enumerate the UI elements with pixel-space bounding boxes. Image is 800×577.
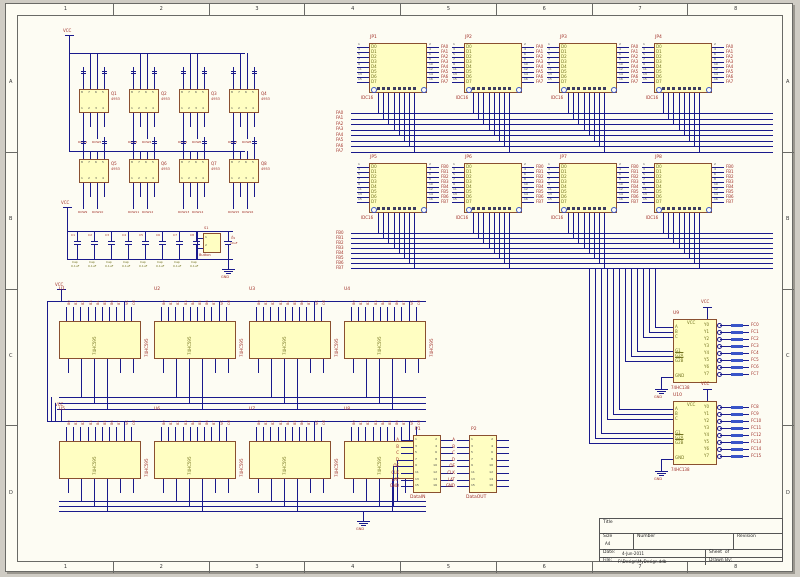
- net-label: FC4: [751, 351, 759, 355]
- wire: [694, 93, 695, 146]
- series-pad[interactable]: [731, 366, 743, 369]
- net-label: B7: [213, 420, 217, 425]
- wire: [285, 307, 286, 321]
- series-pad[interactable]: [731, 420, 743, 423]
- transistor-pair-Q1[interactable]: [79, 89, 109, 113]
- bus-net-label: FB4: [336, 251, 344, 255]
- header-pad: [382, 87, 385, 90]
- wire: [61, 414, 62, 421]
- header-part: IDC16: [456, 216, 468, 220]
- pin-number: 1: [471, 438, 473, 441]
- net-label: FB7: [726, 200, 734, 204]
- series-pad[interactable]: [731, 413, 743, 416]
- series-pad[interactable]: [731, 345, 743, 348]
- wire: [720, 332, 731, 333]
- transistor-pair-Q3[interactable]: [179, 89, 209, 113]
- wire: [162, 231, 163, 241]
- mount-hole: [421, 207, 427, 213]
- vcc-bar: [703, 307, 712, 308]
- connector-designator: P2: [471, 428, 477, 433]
- bus-net-label: FB2: [336, 241, 344, 245]
- series-pad[interactable]: [731, 338, 743, 341]
- wire: [83, 113, 84, 139]
- pin-name: Y5: [704, 358, 709, 362]
- ruler-tick: [687, 4, 688, 15]
- net-label: VC: [411, 300, 415, 305]
- wire: [323, 479, 324, 493]
- wire: [74, 241, 81, 242]
- header-pad: [603, 207, 606, 210]
- wire: [226, 427, 227, 441]
- wire: [661, 459, 662, 467]
- pin-number: 6: [245, 161, 247, 164]
- wire: [578, 213, 579, 243]
- wire: [258, 479, 259, 493]
- pin-number: 2: [524, 43, 526, 46]
- wire: [497, 460, 509, 461]
- header-pad: [583, 87, 586, 90]
- net-label: B4: [97, 300, 101, 305]
- pin-name: VCC: [687, 403, 695, 407]
- gnd-bar: [361, 525, 366, 526]
- wire: [457, 460, 469, 461]
- part-label: 74HC595: [335, 338, 339, 357]
- wire: [69, 40, 70, 53]
- pin-number: 1: [181, 107, 183, 110]
- wire: [589, 213, 590, 253]
- pin-number: 5: [102, 161, 104, 164]
- gnd-label: GND: [654, 396, 662, 400]
- series-pad[interactable]: [731, 352, 743, 355]
- net-label: VC: [221, 300, 225, 305]
- net-label: VC: [316, 420, 320, 425]
- shift-register-U6[interactable]: [154, 441, 236, 479]
- designator: U7: [249, 408, 255, 413]
- date-label: Date:: [603, 551, 615, 556]
- wire: [661, 377, 662, 385]
- header-pad: [683, 87, 686, 90]
- pin-number: 12: [483, 471, 493, 474]
- net-label: ROW15: [228, 211, 239, 214]
- header-pad: [387, 87, 390, 90]
- sheet-cell: Sheet of: [706, 550, 782, 557]
- series-pad[interactable]: [731, 455, 743, 458]
- pin-number: 3: [358, 168, 360, 171]
- pin-name: Y6: [704, 447, 709, 451]
- pin-number: 4: [102, 107, 104, 110]
- pin-number: 11: [643, 188, 647, 191]
- wire: [601, 433, 661, 434]
- wire: [353, 359, 354, 373]
- mark: [252, 141, 257, 142]
- wire: [176, 373, 177, 397]
- wire: [351, 307, 352, 321]
- mount-hole: [706, 87, 712, 93]
- shift-register-U7[interactable]: [249, 441, 331, 479]
- shift-register-U1[interactable]: [59, 321, 141, 359]
- wire: [655, 327, 661, 328]
- wire: [306, 307, 307, 321]
- wire: [661, 419, 673, 420]
- pin-number: 6: [145, 161, 147, 164]
- wire: [120, 359, 121, 373]
- mark: [81, 143, 86, 144]
- wire: [699, 93, 700, 152]
- wire: [80, 427, 81, 441]
- wire: [401, 453, 413, 454]
- bus-wire: [351, 268, 773, 269]
- pin-number: 9: [358, 63, 360, 66]
- net-label: B2: [177, 420, 181, 425]
- cap-value: 0.1uF: [190, 265, 198, 268]
- header-JP8[interactable]: [654, 163, 712, 213]
- header-JP1[interactable]: [369, 43, 427, 93]
- mount-hole: [371, 87, 377, 93]
- header-pad: [603, 87, 606, 90]
- bus-wire: [59, 506, 426, 507]
- header-pad: [693, 87, 696, 90]
- wire: [631, 268, 632, 356]
- pin-number: 11: [471, 471, 475, 474]
- pin-number: 4: [102, 177, 104, 180]
- net-label: FA7: [441, 80, 448, 84]
- pin-number: 5: [548, 53, 550, 56]
- wire: [258, 359, 259, 373]
- wire: [102, 307, 103, 321]
- wire: [357, 82, 369, 83]
- ruler-tick: [304, 562, 305, 573]
- pin-name: Y7: [704, 372, 709, 376]
- pin-number: 6: [619, 53, 621, 56]
- bus-net-label: FA3: [336, 127, 343, 131]
- wire: [457, 440, 469, 441]
- net-label: B: [379, 445, 399, 449]
- header-part: IDC16: [456, 96, 468, 100]
- pin-number: 9: [643, 63, 645, 66]
- wire: [202, 479, 203, 493]
- cap-designator: C8: [190, 234, 194, 237]
- gnd-bar: [357, 521, 370, 522]
- wire: [673, 93, 674, 124]
- pin-name: Y4: [704, 433, 709, 437]
- wire: [743, 325, 749, 326]
- pin-number: 9: [548, 183, 550, 186]
- wire: [183, 307, 184, 321]
- pin-number: 3: [471, 445, 473, 448]
- mark: [231, 73, 236, 74]
- wire: [404, 93, 405, 141]
- net-label: B5: [104, 300, 108, 305]
- transistor-pair-Q7[interactable]: [179, 159, 209, 183]
- net-label: OE: [418, 420, 422, 425]
- wire: [743, 353, 749, 354]
- net-label: B6: [206, 300, 210, 305]
- wire: [69, 151, 245, 152]
- net-label: FC15: [751, 454, 761, 458]
- series-pad[interactable]: [731, 441, 743, 444]
- wire: [353, 479, 354, 493]
- wire: [637, 268, 638, 351]
- bus-net-label: FA0: [336, 111, 343, 115]
- pin-number: 9: [471, 464, 473, 467]
- ruler-tick: [687, 562, 688, 573]
- wire: [720, 339, 731, 340]
- pin-number: 15: [453, 198, 457, 201]
- wire: [617, 202, 629, 203]
- switch-designator: S1: [204, 227, 208, 231]
- wire: [67, 231, 233, 232]
- header-JP2[interactable]: [464, 43, 522, 93]
- wire: [204, 307, 205, 321]
- pin-number: 3: [453, 48, 455, 51]
- series-pad[interactable]: [731, 324, 743, 327]
- wire: [91, 241, 98, 242]
- wire: [247, 151, 248, 159]
- shift-register-U4[interactable]: [344, 321, 426, 359]
- wire: [584, 213, 585, 248]
- net-label: B2: [177, 300, 181, 305]
- wire: [204, 183, 205, 197]
- header-pad: [413, 207, 416, 210]
- wire: [392, 359, 393, 373]
- net-label: B4: [287, 420, 291, 425]
- wire: [547, 202, 559, 203]
- mount-hole: [561, 87, 567, 93]
- pin-name: Y1: [704, 330, 709, 334]
- wire: [743, 332, 749, 333]
- net-label: FB7: [631, 200, 639, 204]
- header-JP4[interactable]: [654, 43, 712, 93]
- wire: [285, 427, 286, 441]
- wire: [233, 183, 234, 209]
- wire: [297, 359, 298, 373]
- wire: [631, 356, 661, 357]
- pin-number: 9: [453, 63, 455, 66]
- wire: [247, 113, 248, 139]
- cap-designator: C6: [156, 234, 160, 237]
- wire: [95, 427, 96, 441]
- pin-number: 2: [483, 438, 493, 441]
- mount-hole: [611, 87, 617, 93]
- wire: [189, 479, 190, 493]
- wire: [66, 427, 67, 441]
- mark: [202, 141, 207, 142]
- header-JP5[interactable]: [369, 163, 427, 213]
- pin-number: 8: [714, 58, 716, 61]
- ruler-column-top: 2: [160, 7, 163, 12]
- wire: [81, 479, 82, 493]
- pin-name: Y0: [704, 323, 709, 327]
- series-pad[interactable]: [731, 331, 743, 334]
- wire: [204, 427, 205, 441]
- size-label: Size: [603, 535, 612, 540]
- pin-number: 6: [714, 173, 716, 176]
- net-label: B6: [396, 420, 400, 425]
- series-pad[interactable]: [731, 373, 743, 376]
- pin-number: 2: [619, 163, 621, 166]
- cap-designator: C5: [139, 234, 143, 237]
- wire: [684, 213, 685, 253]
- net-label: B3: [90, 420, 94, 425]
- shift-register-U5[interactable]: [59, 441, 141, 479]
- wire: [594, 93, 595, 141]
- pin-number: 1: [643, 163, 645, 166]
- pin-number: 12: [619, 68, 623, 71]
- wire: [140, 53, 141, 89]
- pin-number: 2: [714, 43, 716, 46]
- wire: [189, 493, 190, 506]
- pin-number: 1: [81, 107, 83, 110]
- pin-number: 3: [145, 177, 147, 180]
- header-pad: [698, 87, 701, 90]
- ruler-column-bottom: 3: [255, 565, 258, 570]
- pin-number: 3: [245, 177, 247, 180]
- transistor-pair-Q8[interactable]: [229, 159, 259, 183]
- wire: [263, 427, 264, 441]
- wire: [94, 244, 95, 259]
- wire: [522, 82, 534, 83]
- wire: [125, 241, 132, 242]
- wire: [452, 82, 464, 83]
- series-pad[interactable]: [731, 434, 743, 437]
- pin-number: 13: [548, 73, 552, 76]
- header-JP7[interactable]: [559, 163, 617, 213]
- wire: [254, 183, 255, 197]
- pin-name: GND: [675, 456, 684, 460]
- ruler-column-top: 8: [734, 7, 737, 12]
- transistor-pair-Q4[interactable]: [229, 89, 259, 113]
- wire: [720, 360, 731, 361]
- wire: [83, 183, 84, 209]
- wire: [73, 427, 74, 441]
- bus-net-label: FB0: [336, 231, 344, 235]
- shift-register-U2[interactable]: [154, 321, 236, 359]
- wire: [124, 301, 125, 307]
- pin-number: 16: [714, 78, 718, 81]
- wire: [310, 479, 311, 493]
- net-label: A: [435, 438, 455, 442]
- pin-number: 1: [358, 163, 360, 166]
- pin-name: VCC: [687, 321, 695, 325]
- wire: [589, 268, 590, 443]
- wire: [94, 493, 95, 506]
- pin-name: Y5: [704, 440, 709, 444]
- bus-net-label: FB1: [336, 236, 344, 240]
- net-label: ROW8: [242, 141, 251, 144]
- net-label: B0: [68, 300, 72, 305]
- series-pad[interactable]: [731, 406, 743, 409]
- header-pad: [488, 207, 491, 210]
- pin-number: 14: [619, 193, 623, 196]
- shift-register-U3[interactable]: [249, 321, 331, 359]
- transistor-pair-Q6[interactable]: [129, 159, 159, 183]
- pin-name: Y3: [704, 426, 709, 430]
- vcc-label: VCC: [63, 29, 71, 33]
- ruler-tick: [6, 152, 17, 153]
- pin-number: 2: [238, 177, 240, 180]
- mark: [102, 143, 107, 144]
- pin-number: 11: [643, 68, 647, 71]
- bus-net-label: FB3: [336, 246, 344, 250]
- pin-number: 15: [358, 198, 362, 201]
- pin-number: 4: [429, 168, 431, 171]
- net-label: CLK: [435, 471, 455, 475]
- wire: [202, 373, 203, 409]
- net-label: B0: [68, 420, 72, 425]
- pin-number: 5: [102, 91, 104, 94]
- pin-name: Y0: [704, 405, 709, 409]
- header-designator: JP3: [560, 36, 567, 41]
- transistor-pair-Q5[interactable]: [79, 159, 109, 183]
- wire: [625, 268, 626, 361]
- wire: [679, 213, 680, 248]
- designator: Q3: [211, 92, 217, 96]
- wire: [679, 93, 680, 130]
- net-label: VC: [411, 420, 415, 425]
- wire: [163, 359, 164, 373]
- bus-net-label: FB5: [336, 256, 344, 260]
- designator: U1: [59, 288, 65, 293]
- net-label: OE: [228, 420, 232, 425]
- header-pad: [688, 207, 691, 210]
- wire: [416, 307, 417, 321]
- wire: [578, 93, 579, 124]
- wire: [161, 307, 162, 321]
- wire: [394, 307, 395, 321]
- wire: [189, 373, 190, 403]
- revision-cell: Revision: [734, 534, 782, 549]
- pin-number: 3: [245, 107, 247, 110]
- net-label: ROW10: [92, 211, 103, 214]
- net-label: FC10: [751, 419, 761, 423]
- gnd-bar: [657, 473, 666, 474]
- wire: [642, 82, 654, 83]
- wire: [116, 427, 117, 441]
- wire: [202, 359, 203, 373]
- pin-number: 8: [524, 58, 526, 61]
- wire: [401, 473, 413, 474]
- wire: [131, 307, 132, 321]
- wire: [190, 113, 191, 127]
- pin-number: 15: [358, 78, 362, 81]
- series-pad[interactable]: [731, 427, 743, 430]
- net-label: OE: [418, 300, 422, 305]
- wire: [240, 151, 241, 159]
- pin-number: 11: [548, 188, 552, 191]
- net-label: B1: [265, 420, 269, 425]
- wire: [497, 440, 509, 441]
- pin-number: 5: [252, 91, 254, 94]
- wire: [228, 479, 229, 493]
- transistor-pair-Q2[interactable]: [129, 89, 159, 113]
- wire: [497, 480, 509, 481]
- net-label: FC14: [751, 447, 761, 451]
- header-JP3[interactable]: [559, 43, 617, 93]
- mark: [181, 141, 186, 142]
- ruler-column-top: 5: [447, 7, 450, 12]
- mark: [202, 143, 207, 144]
- wire: [607, 268, 608, 419]
- wire: [284, 373, 285, 403]
- header-JP6[interactable]: [464, 163, 522, 213]
- pin-number: 8: [429, 178, 431, 181]
- series-pad[interactable]: [731, 448, 743, 451]
- wire: [211, 427, 212, 441]
- bus-net-label: FA1: [336, 116, 343, 120]
- series-pad[interactable]: [731, 359, 743, 362]
- wire: [489, 93, 490, 130]
- wire: [720, 421, 731, 422]
